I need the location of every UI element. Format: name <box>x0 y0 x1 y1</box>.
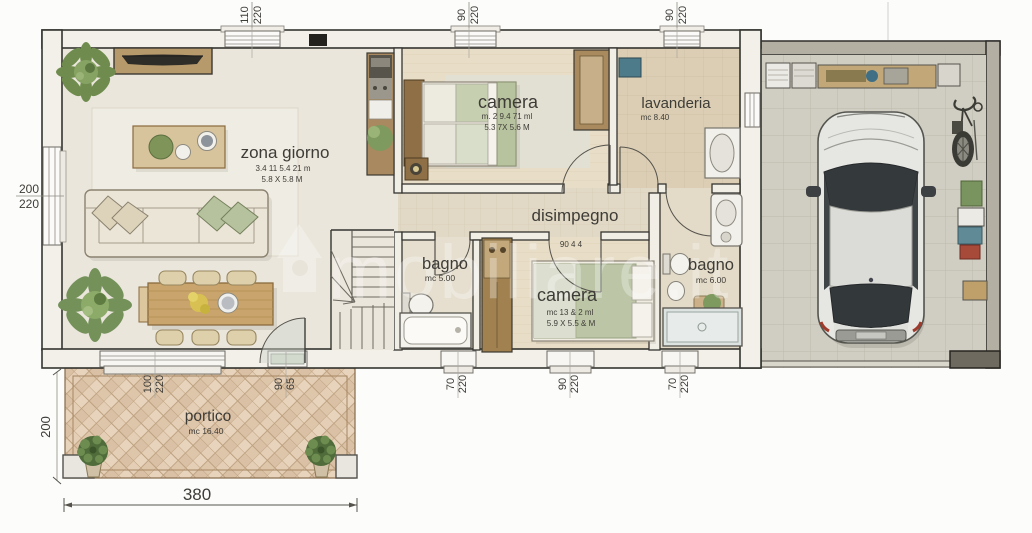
svg-text:bagno: bagno <box>688 256 734 274</box>
svg-text:220: 220 <box>469 6 481 24</box>
svg-text:70: 70 <box>445 378 457 390</box>
svg-text:portico: portico <box>185 408 232 425</box>
svg-text:65: 65 <box>285 378 297 390</box>
svg-text:mc 13 & 2 ml: mc 13 & 2 ml <box>547 308 594 317</box>
svg-text:90: 90 <box>273 378 285 390</box>
svg-text:110: 110 <box>239 6 251 24</box>
svg-text:5.9 X 5.5 & M: 5.9 X 5.5 & M <box>547 319 596 328</box>
svg-text:mc 5.00: mc 5.00 <box>425 273 456 283</box>
svg-text:200: 200 <box>38 416 53 438</box>
svg-text:lavanderia: lavanderia <box>641 95 711 112</box>
svg-text:mc 16.40: mc 16.40 <box>189 426 224 436</box>
svg-text:220: 220 <box>154 375 166 393</box>
svg-text:mc 6.00: mc 6.00 <box>696 275 727 285</box>
svg-text:200: 200 <box>19 182 39 196</box>
svg-text:camera: camera <box>537 285 598 305</box>
svg-text:90: 90 <box>664 9 676 21</box>
svg-text:3.4 11 5.4 21 m: 3.4 11 5.4 21 m <box>256 164 311 173</box>
svg-text:380: 380 <box>183 485 211 504</box>
svg-text:220: 220 <box>457 375 469 393</box>
svg-text:mobiliare.it: mobiliare.it <box>328 230 731 315</box>
svg-text:m. 2 9.4 71 ml: m. 2 9.4 71 ml <box>482 112 533 121</box>
svg-text:220: 220 <box>19 197 39 211</box>
svg-text:90: 90 <box>456 9 468 21</box>
svg-text:220: 220 <box>677 6 689 24</box>
svg-text:5.3 7X 5.6 M: 5.3 7X 5.6 M <box>484 123 530 132</box>
svg-text:disimpegno: disimpegno <box>532 206 619 225</box>
svg-text:70: 70 <box>667 378 679 390</box>
svg-text:100: 100 <box>142 375 154 393</box>
svg-text:220: 220 <box>569 375 581 393</box>
svg-text:5.8 X 5.8 M: 5.8 X 5.8 M <box>262 175 303 184</box>
svg-text:220: 220 <box>679 375 691 393</box>
svg-text:90 4 4: 90 4 4 <box>560 240 583 249</box>
svg-text:220: 220 <box>252 6 264 24</box>
svg-text:camera: camera <box>478 92 539 112</box>
svg-text:90: 90 <box>557 378 569 390</box>
svg-text:mc 8.40: mc 8.40 <box>641 113 670 122</box>
svg-text:bagno: bagno <box>422 255 468 273</box>
svg-text:zona giorno: zona giorno <box>241 143 330 162</box>
